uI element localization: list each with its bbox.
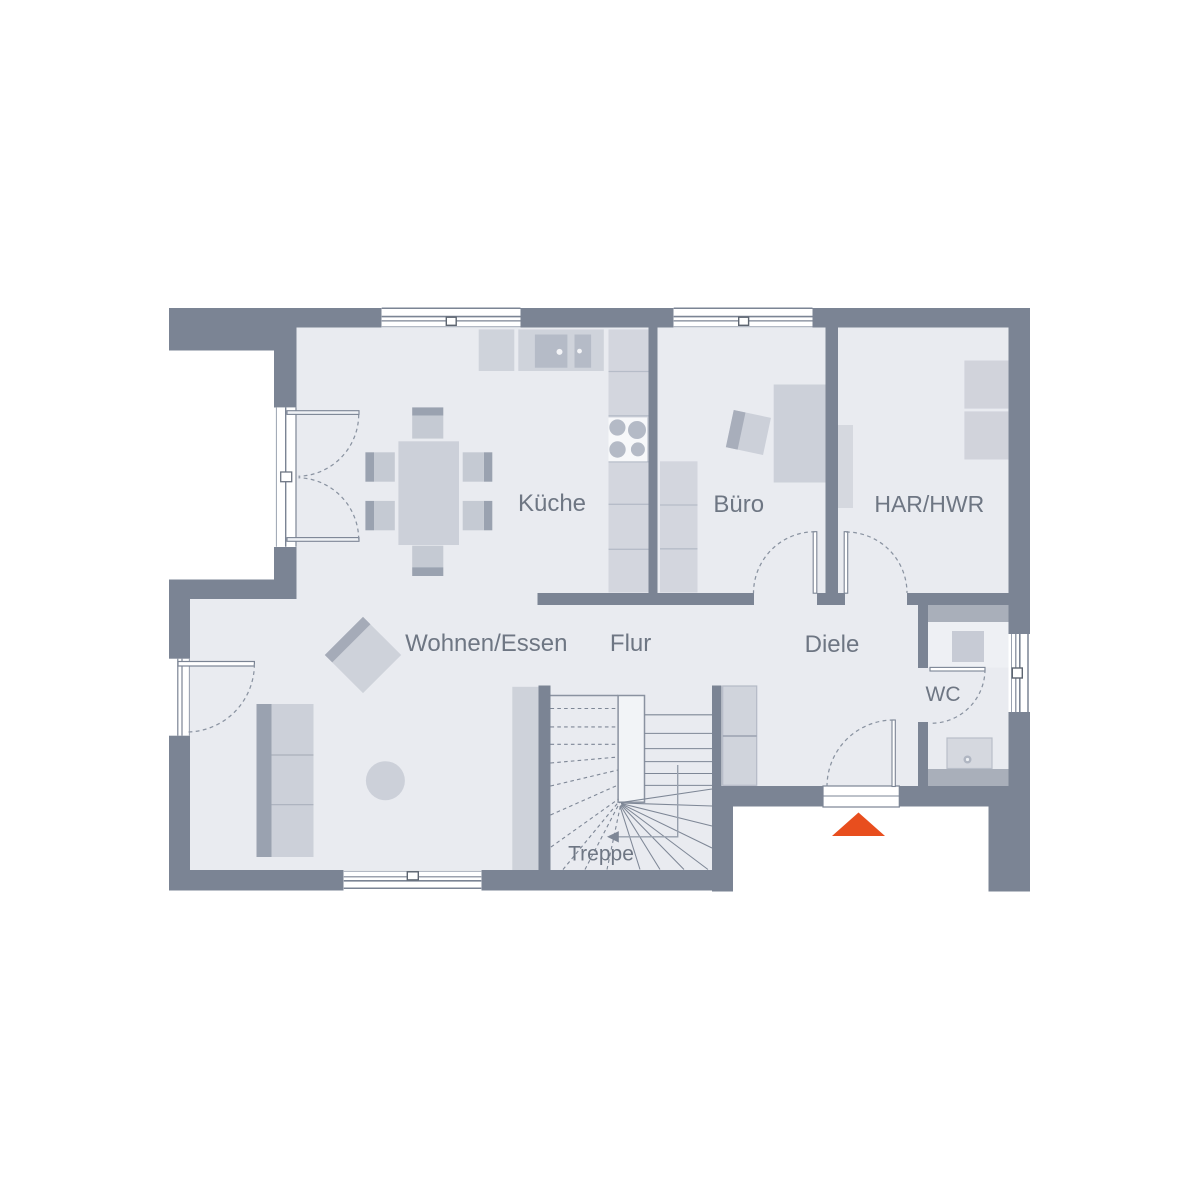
svg-text:Treppe: Treppe bbox=[568, 843, 634, 866]
svg-text:Küche: Küche bbox=[518, 490, 586, 517]
svg-text:Flur: Flur bbox=[610, 630, 651, 657]
svg-text:Büro: Büro bbox=[713, 491, 764, 518]
svg-text:Wohnen/Essen: Wohnen/Essen bbox=[405, 630, 567, 657]
svg-text:Diele: Diele bbox=[805, 631, 860, 658]
svg-text:HAR/HWR: HAR/HWR bbox=[874, 491, 984, 517]
svg-text:WC: WC bbox=[926, 683, 961, 706]
